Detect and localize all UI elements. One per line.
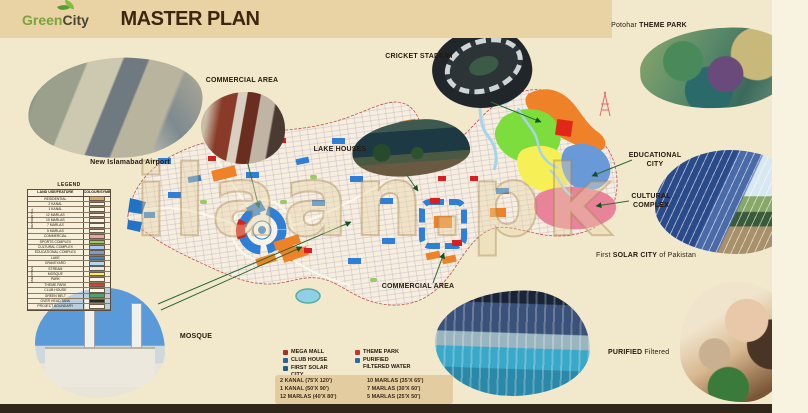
legend-color-swatch (89, 223, 105, 228)
amenity-icon (283, 366, 288, 371)
legend-color-swatch (89, 266, 105, 271)
legend-row-label: 5 MARLAS (28, 229, 84, 233)
plot-size-entry: 7 MARLAS (30'X 60') (367, 386, 448, 393)
legend-color-swatch (89, 229, 105, 234)
stadium-block (555, 119, 573, 137)
legend-row-label: PROJECT BOUNDARY (28, 304, 84, 308)
greencity-logo: GreenCity (22, 12, 89, 28)
plot-size-entry: 5 MARLAS (25'X 50') (367, 394, 448, 401)
logo-text-city: City (62, 12, 88, 28)
legend-row-label: MOSQUE (28, 272, 84, 276)
plot-size-entry: 12 MARLAS (40'X 80') (280, 394, 361, 401)
legend-row-label: STREAM (28, 267, 84, 271)
mosque-label: MOSQUE (166, 333, 226, 342)
legend-group-residential: RESIDENTIAL (30, 208, 34, 228)
legend-color-swatch (89, 250, 105, 255)
legend-row-label: CULTURAL COMPLEX (28, 245, 84, 249)
cultural-zone (534, 187, 616, 230)
educational-city-label: EDUCATIONALCITY (618, 152, 692, 169)
amenity-icon (283, 350, 288, 355)
legend-row-label: GRAVEYARD (28, 261, 84, 265)
amenity-label: MEGA MALL (291, 349, 324, 356)
plot-size-entry: 1 KANAL (50'X 90') (280, 386, 361, 393)
commercial-top-label: COMMERCIAL AREA (196, 77, 288, 86)
legend-color-swatch (89, 202, 105, 207)
purified-label: PURIFIED Filtered (608, 349, 688, 358)
amenity-label: CLUB HOUSE (291, 357, 327, 364)
legend-color-swatch (89, 207, 105, 212)
legend-color-swatch (89, 240, 105, 245)
legend-color-swatch (89, 283, 105, 288)
amenity-label: THEME PARK (363, 349, 399, 356)
legend-color-swatch (89, 261, 105, 266)
lake-west-2 (127, 220, 142, 232)
legend-row-label: GREEN BELT (28, 294, 84, 298)
plot-size-entry: 2 KANAL (75'X 120') (280, 378, 361, 385)
theme-park-label: Potohar THEME PARK (594, 22, 704, 31)
amenity-item: PURIFIED FILTERED WATER (355, 357, 413, 370)
legend-row-label: 10 MARLAS (28, 218, 84, 222)
legend-color-swatch (89, 272, 105, 277)
amenity-item: THEME PARK (355, 349, 413, 356)
legend-row-label: EDUCATIONAL COMPLEX (28, 250, 84, 254)
legend-row-label: 12 MARLAS (28, 213, 84, 217)
legend-color-swatch (89, 293, 105, 298)
legend-col-symbol: COLOUR/SYMBOL (84, 190, 110, 196)
legend-row-label: THEME PARK (28, 283, 84, 287)
legend-row-label: LAKE (28, 256, 84, 260)
commercial-area-photo (201, 92, 285, 164)
legend-color-swatch (89, 245, 105, 250)
legend-color-swatch (89, 234, 105, 239)
legend-color-swatch (89, 213, 105, 218)
legend-title: LEGEND (27, 182, 111, 189)
legend-row-label: CLUB HOUSE (28, 288, 84, 292)
solar-city-label: First SOLAR CITY of Pakistan (596, 252, 762, 261)
amenity-item: CLUB HOUSE (283, 357, 341, 364)
airport-label: New Islamabad Airport (55, 159, 205, 168)
legend-row-label: 1 KANAL (28, 207, 84, 211)
legend-color-swatch (89, 299, 105, 304)
amenity-item: MEGA MALL (283, 349, 341, 356)
legend-row-label: 2 KANAL (28, 202, 84, 206)
legend-group-amenities: AMENITIES (30, 267, 34, 283)
right-margin (772, 0, 808, 413)
master-plan-poster: ilaan.pk GreenCity MASTER PLAN New Islam… (0, 0, 808, 413)
legend-col-feature: LAND USE/FEATURE (28, 190, 84, 196)
legend-row-label: OVER HEAD TANK (28, 299, 84, 303)
legend-color-swatch (89, 218, 105, 223)
amenity-label: PURIFIED FILTERED WATER (363, 357, 413, 370)
lake-south (296, 289, 320, 303)
header-band: GreenCity MASTER PLAN (0, 0, 612, 38)
legend-row-label: COMMERCIAL (28, 234, 84, 238)
cricket-stadium-label: CRICKET STADIUM (374, 53, 464, 62)
leaf-icon (58, 1, 74, 13)
commercial-bottom-label: COMMERCIAL AREA (370, 283, 466, 292)
legend-row-label: SPORTS COMPLEX (28, 240, 84, 244)
legend-color-swatch (89, 256, 105, 261)
legend-color-swatch (89, 288, 105, 293)
amenity-icon (355, 350, 360, 355)
legend-color-swatch (89, 277, 105, 282)
footer-strip (0, 404, 772, 413)
legend-table: LEGEND LAND USE/FEATURE COLOUR/SYMBOL RE… (27, 182, 111, 311)
plot-size-entry: 10 MARLAS (35'X 65') (367, 378, 448, 385)
logo-text-green: Green (22, 12, 62, 28)
legend-row-label: RESIDENTIAL (28, 197, 84, 201)
legend-rows: RESIDENTIAL 2 KANAL 1 KANAL 12 M (28, 197, 110, 310)
amenity-icon (283, 358, 288, 363)
legend-color-swatch (89, 304, 105, 309)
legend-row-label: 7 MARLAS (28, 223, 84, 227)
cultural-complex-label: CULTURALCOMPLEX (614, 193, 688, 210)
lake-houses-label: LAKE HOUSES (304, 146, 376, 155)
plot-sizes-box: 2 KANAL (75'X 120') 10 MARLAS (35'X 65')… (275, 375, 453, 404)
legend-color-swatch (89, 196, 105, 201)
amenity-icon (355, 358, 360, 363)
page-title: MASTER PLAN (120, 8, 260, 30)
legend-row-label: PARK (28, 277, 84, 281)
legend-row: PROJECT BOUNDARY (28, 304, 110, 309)
